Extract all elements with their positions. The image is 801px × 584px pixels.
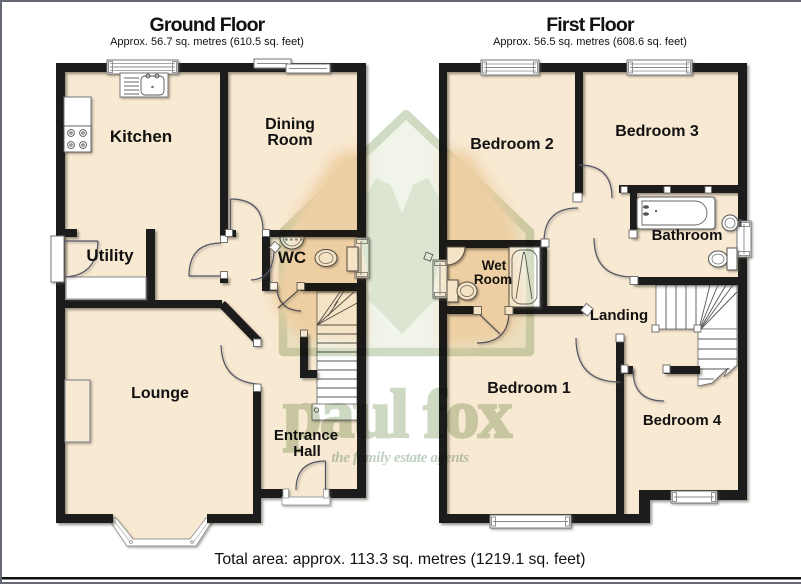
svg-text:Utility: Utility [86, 246, 134, 265]
svg-text:Approx. 56.5 sq. metres (608.6: Approx. 56.5 sq. metres (608.6 sq. feet) [493, 36, 687, 48]
svg-text:Total area: approx. 113.3 sq.: Total area: approx. 113.3 sq. metres (12… [214, 551, 585, 568]
svg-text:Landing: Landing [590, 307, 648, 324]
svg-text:Bedroom 3: Bedroom 3 [615, 123, 699, 140]
svg-text:Approx. 56.7 sq. metres (610.5: Approx. 56.7 sq. metres (610.5 sq. feet) [110, 36, 304, 48]
svg-text:Lounge: Lounge [131, 385, 189, 402]
svg-text:Bedroom 4: Bedroom 4 [643, 412, 722, 429]
svg-text:Bedroom 2: Bedroom 2 [470, 136, 554, 153]
svg-text:paul fox: paul fox [283, 376, 513, 452]
svg-text:First Floor: First Floor [546, 14, 635, 36]
svg-text:Ground Floor: Ground Floor [150, 14, 266, 36]
svg-text:Bathroom: Bathroom [652, 227, 723, 244]
svg-text:Dining: Dining [265, 116, 315, 133]
svg-text:Kitchen: Kitchen [110, 127, 172, 146]
svg-text:the family estate agents: the family estate agents [331, 450, 469, 466]
svg-text:Room: Room [267, 132, 312, 149]
